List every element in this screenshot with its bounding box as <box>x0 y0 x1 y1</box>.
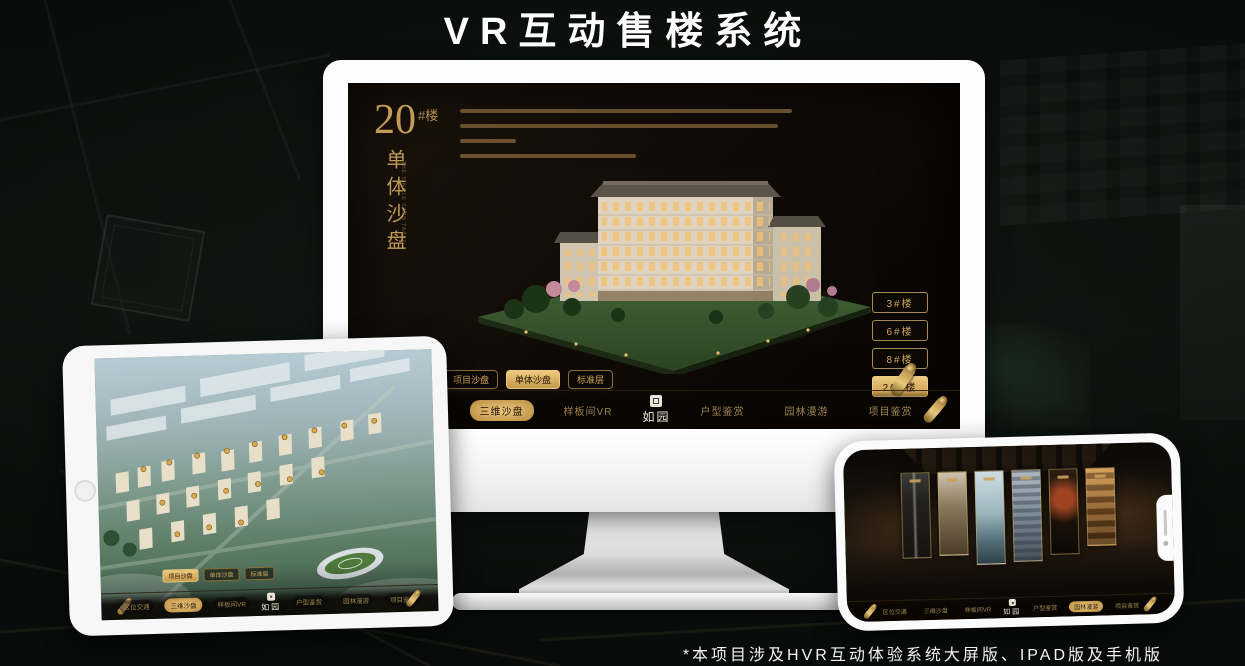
brand-seal-icon <box>267 593 275 601</box>
menu-item-garden-tour[interactable]: 园林漫游 <box>337 593 375 608</box>
panel-label <box>1058 475 1069 478</box>
sandtable-tabs: 项目沙盘 单体沙盘 标准层 <box>444 370 613 389</box>
menu-item-location[interactable]: 区位交通 <box>117 599 155 614</box>
menu-item-showroom-vr[interactable]: 样板间VR <box>211 596 252 611</box>
menu-item-unit-plans[interactable]: 户型鉴赏 <box>290 594 328 609</box>
brand-logo-text: 如园 <box>1003 607 1021 617</box>
main-menu-bar: 区位交通 三维沙盘 样板间VR 如园 户型鉴赏 园林漫游 项目鉴赏 <box>847 593 1175 623</box>
tablet-device: 项目沙盘 单体沙盘 标准层 区位交通 三维沙盘 样板间VR 如园 户型鉴赏 园林… <box>62 336 454 637</box>
panel-label <box>1021 476 1032 479</box>
panorama-panels <box>900 467 1116 567</box>
monitor-stand-base <box>452 593 856 610</box>
sandtable-tabs: 项目沙盘 单体沙盘 标准层 <box>162 567 274 583</box>
menu-item-location[interactable]: 区位交通 <box>878 605 912 617</box>
panel-label <box>984 477 995 480</box>
menu-item-showroom-vr[interactable]: 样板间VR <box>554 400 623 421</box>
menu-item-unit-plans[interactable]: 户型鉴赏 <box>690 400 754 421</box>
phone-device: 区位交通 三维沙盘 样板间VR 如园 户型鉴赏 园林漫游 项目鉴赏 <box>834 433 1185 632</box>
brand-logo: 如园 <box>1003 599 1021 617</box>
main-menu-bar: 区位交通 三维沙盘 样板间VR 如园 户型鉴赏 园林漫游 项目鉴赏 <box>101 584 439 620</box>
background-riverside <box>1180 205 1245 420</box>
phone-notch <box>1156 495 1174 561</box>
menu-item-unit-plans[interactable]: 户型鉴赏 <box>1028 601 1062 613</box>
panel-label <box>1095 474 1106 477</box>
panorama-panel-terrace[interactable] <box>937 471 968 556</box>
phone-screen: 区位交通 三维沙盘 样板间VR 如园 户型鉴赏 园林漫游 项目鉴赏 <box>843 442 1175 623</box>
menu-item-showroom-vr[interactable]: 样板间VR <box>960 603 997 615</box>
building-render <box>466 139 886 374</box>
panorama-panel-autumn-tree[interactable] <box>1048 468 1079 555</box>
brand-seal-icon <box>650 395 662 407</box>
background-city-blocks <box>1000 43 1245 225</box>
brand-logo: 如园 <box>261 592 282 613</box>
background-plaque <box>91 214 205 322</box>
floor-button-3[interactable]: 3#楼 <box>872 292 928 313</box>
scroll-ornament-icon <box>863 603 878 619</box>
panorama-panel-skyline[interactable] <box>974 470 1005 565</box>
menu-item-garden-tour[interactable]: 园林漫游 <box>774 400 838 421</box>
tab-single-sandtable[interactable]: 单体沙盘 <box>506 370 560 389</box>
home-button[interactable] <box>74 480 97 503</box>
tab-single-sandtable[interactable]: 单体沙盘 <box>203 568 239 582</box>
panorama-panel-tower[interactable] <box>1011 469 1042 562</box>
menu-item-project-view[interactable]: 项目鉴赏 <box>1110 599 1144 611</box>
background-trees <box>970 325 1090 430</box>
menu-item-3d-sandtable[interactable]: 三维沙盘 <box>470 400 534 421</box>
menu-item-project-view[interactable]: 项目鉴赏 <box>858 400 922 421</box>
tab-project-sandtable[interactable]: 项目沙盘 <box>162 569 198 583</box>
panorama-panel-interior[interactable] <box>1085 467 1116 546</box>
floor-button-6[interactable]: 6#楼 <box>872 320 928 341</box>
menu-item-garden-tour[interactable]: 园林漫游 <box>1069 600 1103 612</box>
menu-item-3d-sandtable[interactable]: 三维沙盘 <box>164 598 202 613</box>
block-number: 20 <box>374 99 416 141</box>
menu-item-3d-sandtable[interactable]: 三维沙盘 <box>919 604 953 616</box>
speaker-icon <box>1163 510 1167 536</box>
brand-seal-icon <box>1008 599 1015 606</box>
panel-label <box>947 478 958 481</box>
scroll-ornament-icon <box>1143 596 1158 612</box>
tab-project-sandtable[interactable]: 项目沙盘 <box>444 370 498 389</box>
floor-button-8[interactable]: 8#楼 <box>872 348 928 369</box>
panorama-panel-courtyard[interactable] <box>900 472 931 559</box>
tab-standard-floor[interactable]: 标准层 <box>244 567 274 581</box>
footnote: *本项目涉及HVR互动体验系统大屏版、IPAD版及手机版 <box>683 641 1163 665</box>
scroll-ornament-icon <box>922 395 949 424</box>
panel-label <box>910 479 921 482</box>
camera-icon <box>1163 541 1168 546</box>
page-title: VR互动售楼系统 <box>0 0 1245 55</box>
block-title-caption: THE SINGLE SAND TABLE <box>400 161 406 244</box>
brand-logo-text: 如园 <box>642 408 670 425</box>
poster-stage: VR互动售楼系统 20 #楼 单体沙盘 THE SINGLE SAND TABL… <box>0 0 1245 666</box>
brand-logo: 如园 <box>642 395 670 425</box>
block-unit: #楼 <box>418 105 438 124</box>
brand-logo-text: 如园 <box>261 601 281 613</box>
tab-standard-floor[interactable]: 标准层 <box>568 370 613 389</box>
tablet-screen: 项目沙盘 单体沙盘 标准层 区位交通 三维沙盘 样板间VR 如园 户型鉴赏 园林… <box>94 349 438 620</box>
block-title-group: 20 #楼 单体沙盘 <box>374 99 438 257</box>
